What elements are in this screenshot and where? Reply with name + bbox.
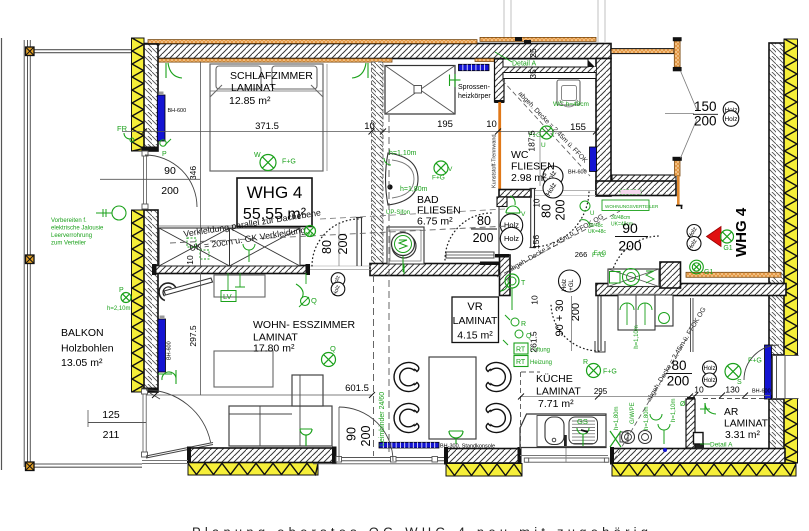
svg-text:156: 156	[531, 235, 541, 249]
svg-text:125: 125	[102, 409, 120, 421]
svg-text:BH-600: BH-600	[167, 341, 173, 360]
svg-text:80: 80	[320, 240, 334, 254]
svg-text:LV: LV	[223, 292, 232, 301]
svg-text:13.05 m²: 13.05 m²	[61, 357, 103, 369]
svg-text:BH-600: BH-600	[168, 108, 187, 114]
svg-text:Holzbohlen: Holzbohlen	[61, 343, 114, 355]
svg-text:KÜCHE: KÜCHE	[536, 373, 573, 385]
svg-text:150: 150	[694, 99, 717, 114]
svg-text:+GL: +GL	[569, 279, 575, 291]
svg-text:Detail A: Detail A	[512, 61, 536, 68]
svg-text:90: 90	[345, 427, 359, 441]
svg-text:T: T	[521, 280, 526, 287]
svg-text:Leimbinder 24/60: Leimbinder 24/60	[379, 392, 386, 446]
svg-text:25: 25	[528, 48, 538, 58]
svg-text:R: R	[583, 359, 588, 366]
svg-text:Q: Q	[330, 344, 336, 353]
svg-text:261.5: 261.5	[529, 331, 539, 353]
svg-text:2.98 m²: 2.98 m²	[511, 172, 547, 184]
svg-text:h=1,80m: h=1,80m	[400, 186, 428, 193]
svg-text:GS: GS	[577, 417, 588, 426]
svg-text:Holz: Holz	[703, 378, 715, 384]
svg-text:FLIESEN: FLIESEN	[511, 161, 555, 173]
svg-text:h=1,10m: h=1,10m	[634, 325, 640, 349]
svg-text:4.15 m²: 4.15 m²	[457, 330, 493, 342]
svg-text:Q: Q	[311, 296, 317, 305]
svg-text:F+G: F+G	[592, 252, 605, 259]
svg-text:LAMINAT: LAMINAT	[724, 419, 769, 430]
svg-text:3.31 m²: 3.31 m²	[725, 430, 760, 441]
svg-text:Holz: Holz	[562, 279, 568, 291]
svg-text:WOHNUNGSVERTEILER: WOHNUNGSVERTEILER	[605, 204, 659, 209]
svg-text:RT: RT	[516, 347, 526, 354]
svg-text:LAMINAT: LAMINAT	[453, 315, 498, 327]
svg-text:BH-600: BH-600	[568, 170, 587, 176]
svg-text:80: 80	[540, 204, 554, 218]
svg-text:200: 200	[554, 200, 568, 221]
svg-text:346: 346	[188, 166, 198, 180]
svg-text:297.5: 297.5	[188, 325, 198, 347]
svg-text:R: R	[521, 321, 526, 328]
svg-text:10: 10	[486, 119, 497, 130]
svg-text:WC h=48cm: WC h=48cm	[553, 101, 589, 108]
svg-text:V: V	[521, 211, 526, 218]
svg-text:F+G: F+G	[748, 358, 762, 365]
svg-text:UP-Sifon: UP-Sifon	[386, 210, 410, 216]
svg-text:F+G: F+G	[282, 159, 296, 166]
svg-text:G1: G1	[723, 245, 732, 252]
svg-text:7.71 m²: 7.71 m²	[538, 398, 574, 410]
svg-text:12.85 m²: 12.85 m²	[229, 95, 271, 107]
svg-text:elektrische Jalousie: elektrische Jalousie	[51, 226, 104, 232]
svg-text:LAMINAT: LAMINAT	[231, 82, 276, 94]
svg-text:35: 35	[528, 69, 538, 79]
svg-text:BH-300, Standkonsole: BH-300, Standkonsole	[440, 444, 495, 450]
svg-text:Holz: Holz	[703, 366, 715, 372]
svg-text:200: 200	[359, 426, 373, 447]
svg-text:200: 200	[667, 374, 690, 389]
svg-text:AR: AR	[724, 407, 738, 418]
svg-text:200: 200	[336, 234, 350, 255]
svg-text:17.80 m²: 17.80 m²	[253, 343, 295, 355]
svg-text:80: 80	[671, 358, 686, 373]
svg-text:zum Verteiler: zum Verteiler	[51, 241, 86, 247]
svg-text:RT: RT	[516, 359, 526, 366]
svg-text:G1: G1	[704, 269, 713, 276]
svg-text:200: 200	[473, 231, 494, 245]
svg-text:Ø: Ø	[680, 401, 686, 408]
svg-text:Detail A: Detail A	[710, 442, 733, 449]
svg-text:BH-600: BH-600	[752, 389, 771, 395]
svg-text:90 + 30: 90 + 30	[554, 299, 566, 336]
svg-text:P: P	[162, 151, 167, 158]
svg-text:Kunststoff-Trennwand: Kunststoff-Trennwand	[492, 134, 498, 188]
svg-text:h=1,80m: h=1,80m	[614, 406, 620, 430]
svg-text:Holz: Holz	[724, 116, 737, 123]
svg-text:h=2,10m: h=2,10m	[107, 306, 131, 312]
svg-text:U: U	[590, 211, 594, 217]
svg-text:200: 200	[694, 114, 717, 129]
svg-text:LAMINAT: LAMINAT	[536, 386, 581, 398]
svg-text:211: 211	[103, 429, 120, 441]
svg-text:U: U	[541, 142, 546, 149]
svg-text:155: 155	[570, 122, 586, 133]
svg-text:F+G: F+G	[432, 175, 445, 182]
svg-text:130: 130	[725, 385, 739, 395]
svg-text:WHG 4: WHG 4	[247, 183, 303, 202]
svg-text:G/W/PE: G/W/PE	[630, 402, 636, 424]
svg-text:90: 90	[622, 220, 638, 236]
svg-text:601.5: 601.5	[345, 383, 369, 394]
svg-text:200: 200	[161, 185, 179, 197]
svg-text:187.5: 187.5	[527, 130, 537, 152]
svg-text:Leerverrohrung: Leerverrohrung	[51, 233, 92, 239]
svg-text:90: 90	[164, 165, 176, 177]
svg-text:Holz: Holz	[504, 234, 519, 243]
svg-text:h=1,10m: h=1,10m	[389, 150, 417, 157]
svg-text:Sprossen-: Sprossen-	[458, 84, 491, 91]
svg-text:Heizung: Heizung	[530, 360, 552, 366]
svg-text:10: 10	[185, 255, 195, 265]
svg-text:V: V	[448, 166, 453, 173]
svg-text:10: 10	[694, 385, 704, 395]
svg-text:heizkörper: heizkörper	[458, 93, 491, 100]
svg-text:10: 10	[530, 295, 540, 305]
svg-text:SCHLAFZIMMER: SCHLAFZIMMER	[230, 70, 313, 82]
svg-text:295: 295	[594, 387, 608, 396]
svg-text:h=1,80m: h=1,80m	[644, 406, 650, 430]
svg-text:UK=48c: UK=48c	[588, 229, 606, 235]
svg-text:6.75 m²: 6.75 m²	[417, 216, 453, 228]
svg-text:80: 80	[477, 214, 491, 228]
svg-text:WHG 4: WHG 4	[733, 207, 750, 257]
svg-text:W: W	[254, 152, 261, 159]
svg-text:BALKON: BALKON	[61, 327, 104, 339]
svg-text:371.5: 371.5	[255, 121, 279, 132]
svg-text:266: 266	[575, 250, 588, 259]
svg-text:Vorbereiten f.: Vorbereiten f.	[51, 218, 87, 224]
svg-text:WOHN- ESSZIMMER: WOHN- ESSZIMMER	[253, 319, 355, 331]
svg-text:VR: VR	[467, 301, 482, 313]
svg-text:F+G: F+G	[603, 369, 617, 376]
svg-text:195: 195	[437, 119, 453, 130]
svg-text:h=1,10m: h=1,10m	[671, 398, 677, 422]
svg-text:200: 200	[618, 238, 642, 254]
